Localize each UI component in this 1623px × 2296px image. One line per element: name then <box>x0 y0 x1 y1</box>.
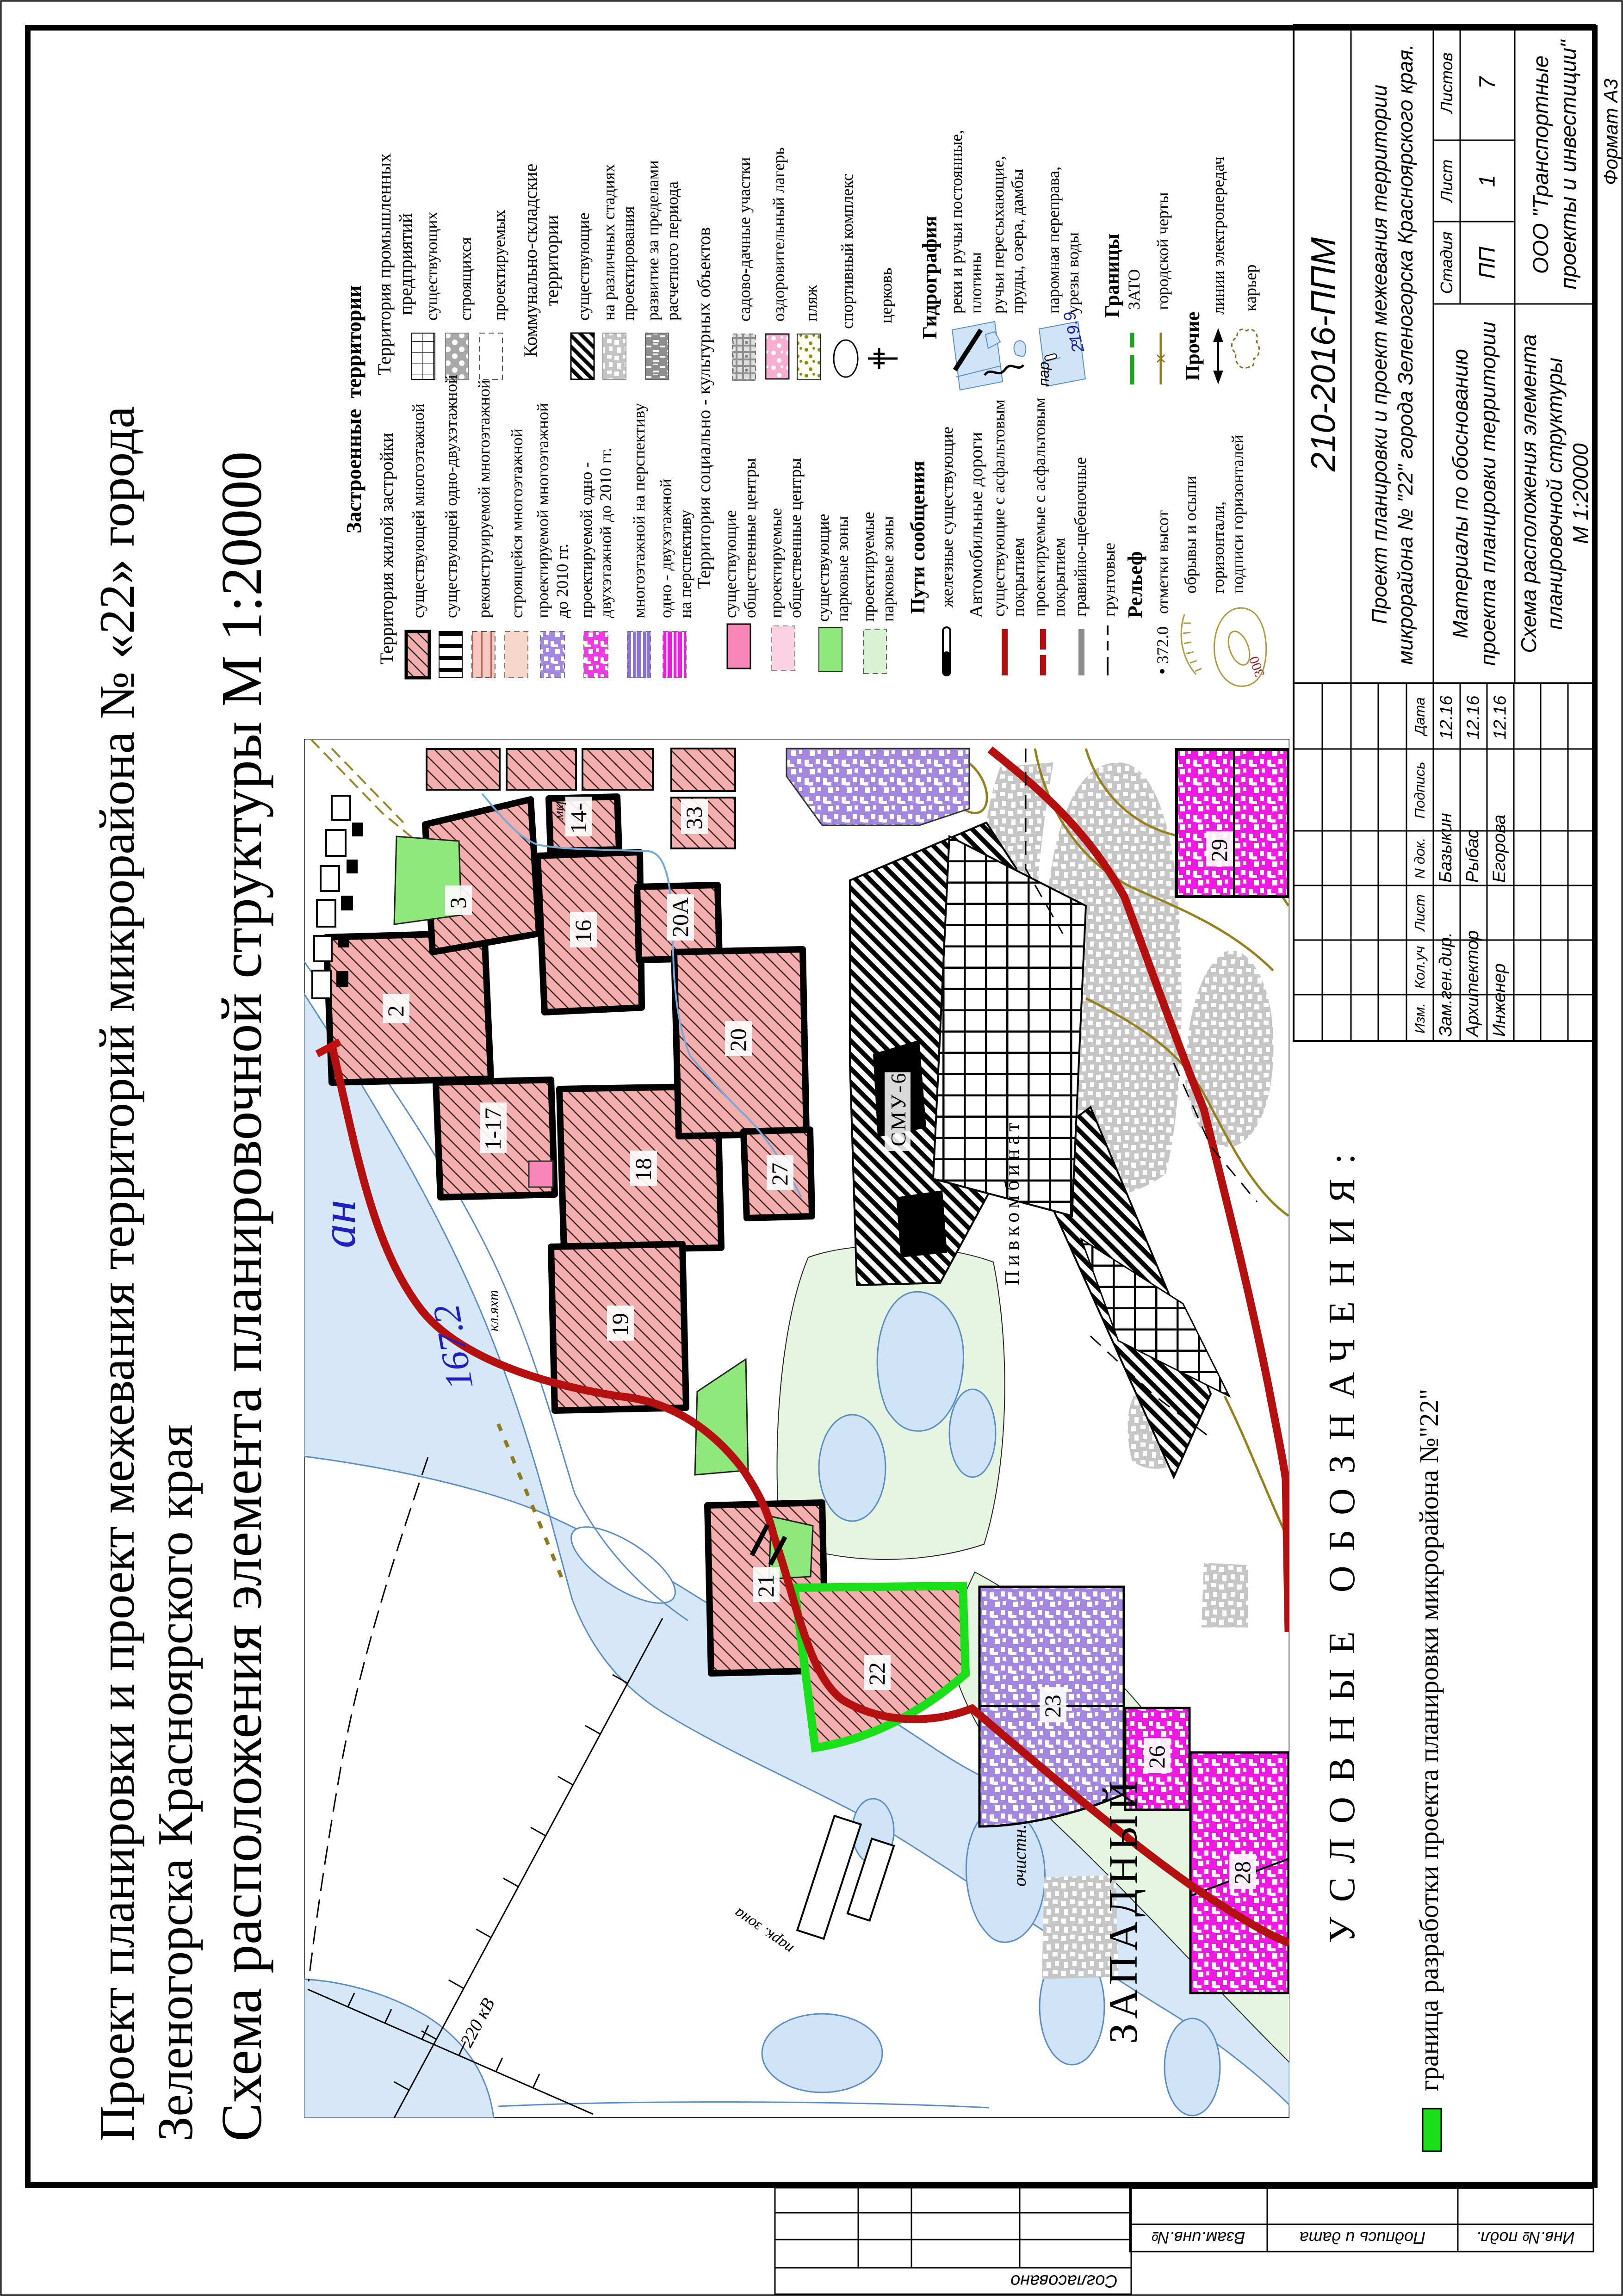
svg-text:14-: 14- <box>565 803 591 834</box>
svg-text:33: 33 <box>681 806 707 829</box>
svg-text:16: 16 <box>570 920 596 943</box>
svg-text:ан: ан <box>311 1200 365 1248</box>
svg-text:мкр.: мкр. <box>551 794 566 820</box>
svg-text:29: 29 <box>1206 839 1232 862</box>
svg-text:СМУ-6: СМУ-6 <box>886 1071 910 1146</box>
svg-text:1-17: 1-17 <box>480 1108 506 1150</box>
svg-text:Пивкомбинат: Пивкомбинат <box>1001 1118 1023 1285</box>
svg-text:21: 21 <box>753 1574 779 1597</box>
svg-text:очистн.: очистн. <box>1009 1824 1030 1887</box>
svg-text:2: 2 <box>383 1005 409 1017</box>
svg-text:28: 28 <box>1229 1861 1255 1884</box>
svg-text:20А: 20А <box>667 897 693 937</box>
svg-text:22: 22 <box>864 1662 890 1685</box>
svg-text:26: 26 <box>1144 1745 1170 1769</box>
svg-text:кл.яхт: кл.яхт <box>485 1290 502 1331</box>
svg-text:ЗАПАДНЫЙ: ЗАПАДНЫЙ <box>1101 1776 1146 2044</box>
svg-text:3: 3 <box>445 897 471 909</box>
svg-text:23: 23 <box>1040 1695 1065 1718</box>
svg-text:20: 20 <box>725 1028 751 1052</box>
svg-text:18: 18 <box>630 1158 656 1181</box>
svg-text:27: 27 <box>767 1163 793 1186</box>
svg-text:19: 19 <box>607 1313 633 1336</box>
